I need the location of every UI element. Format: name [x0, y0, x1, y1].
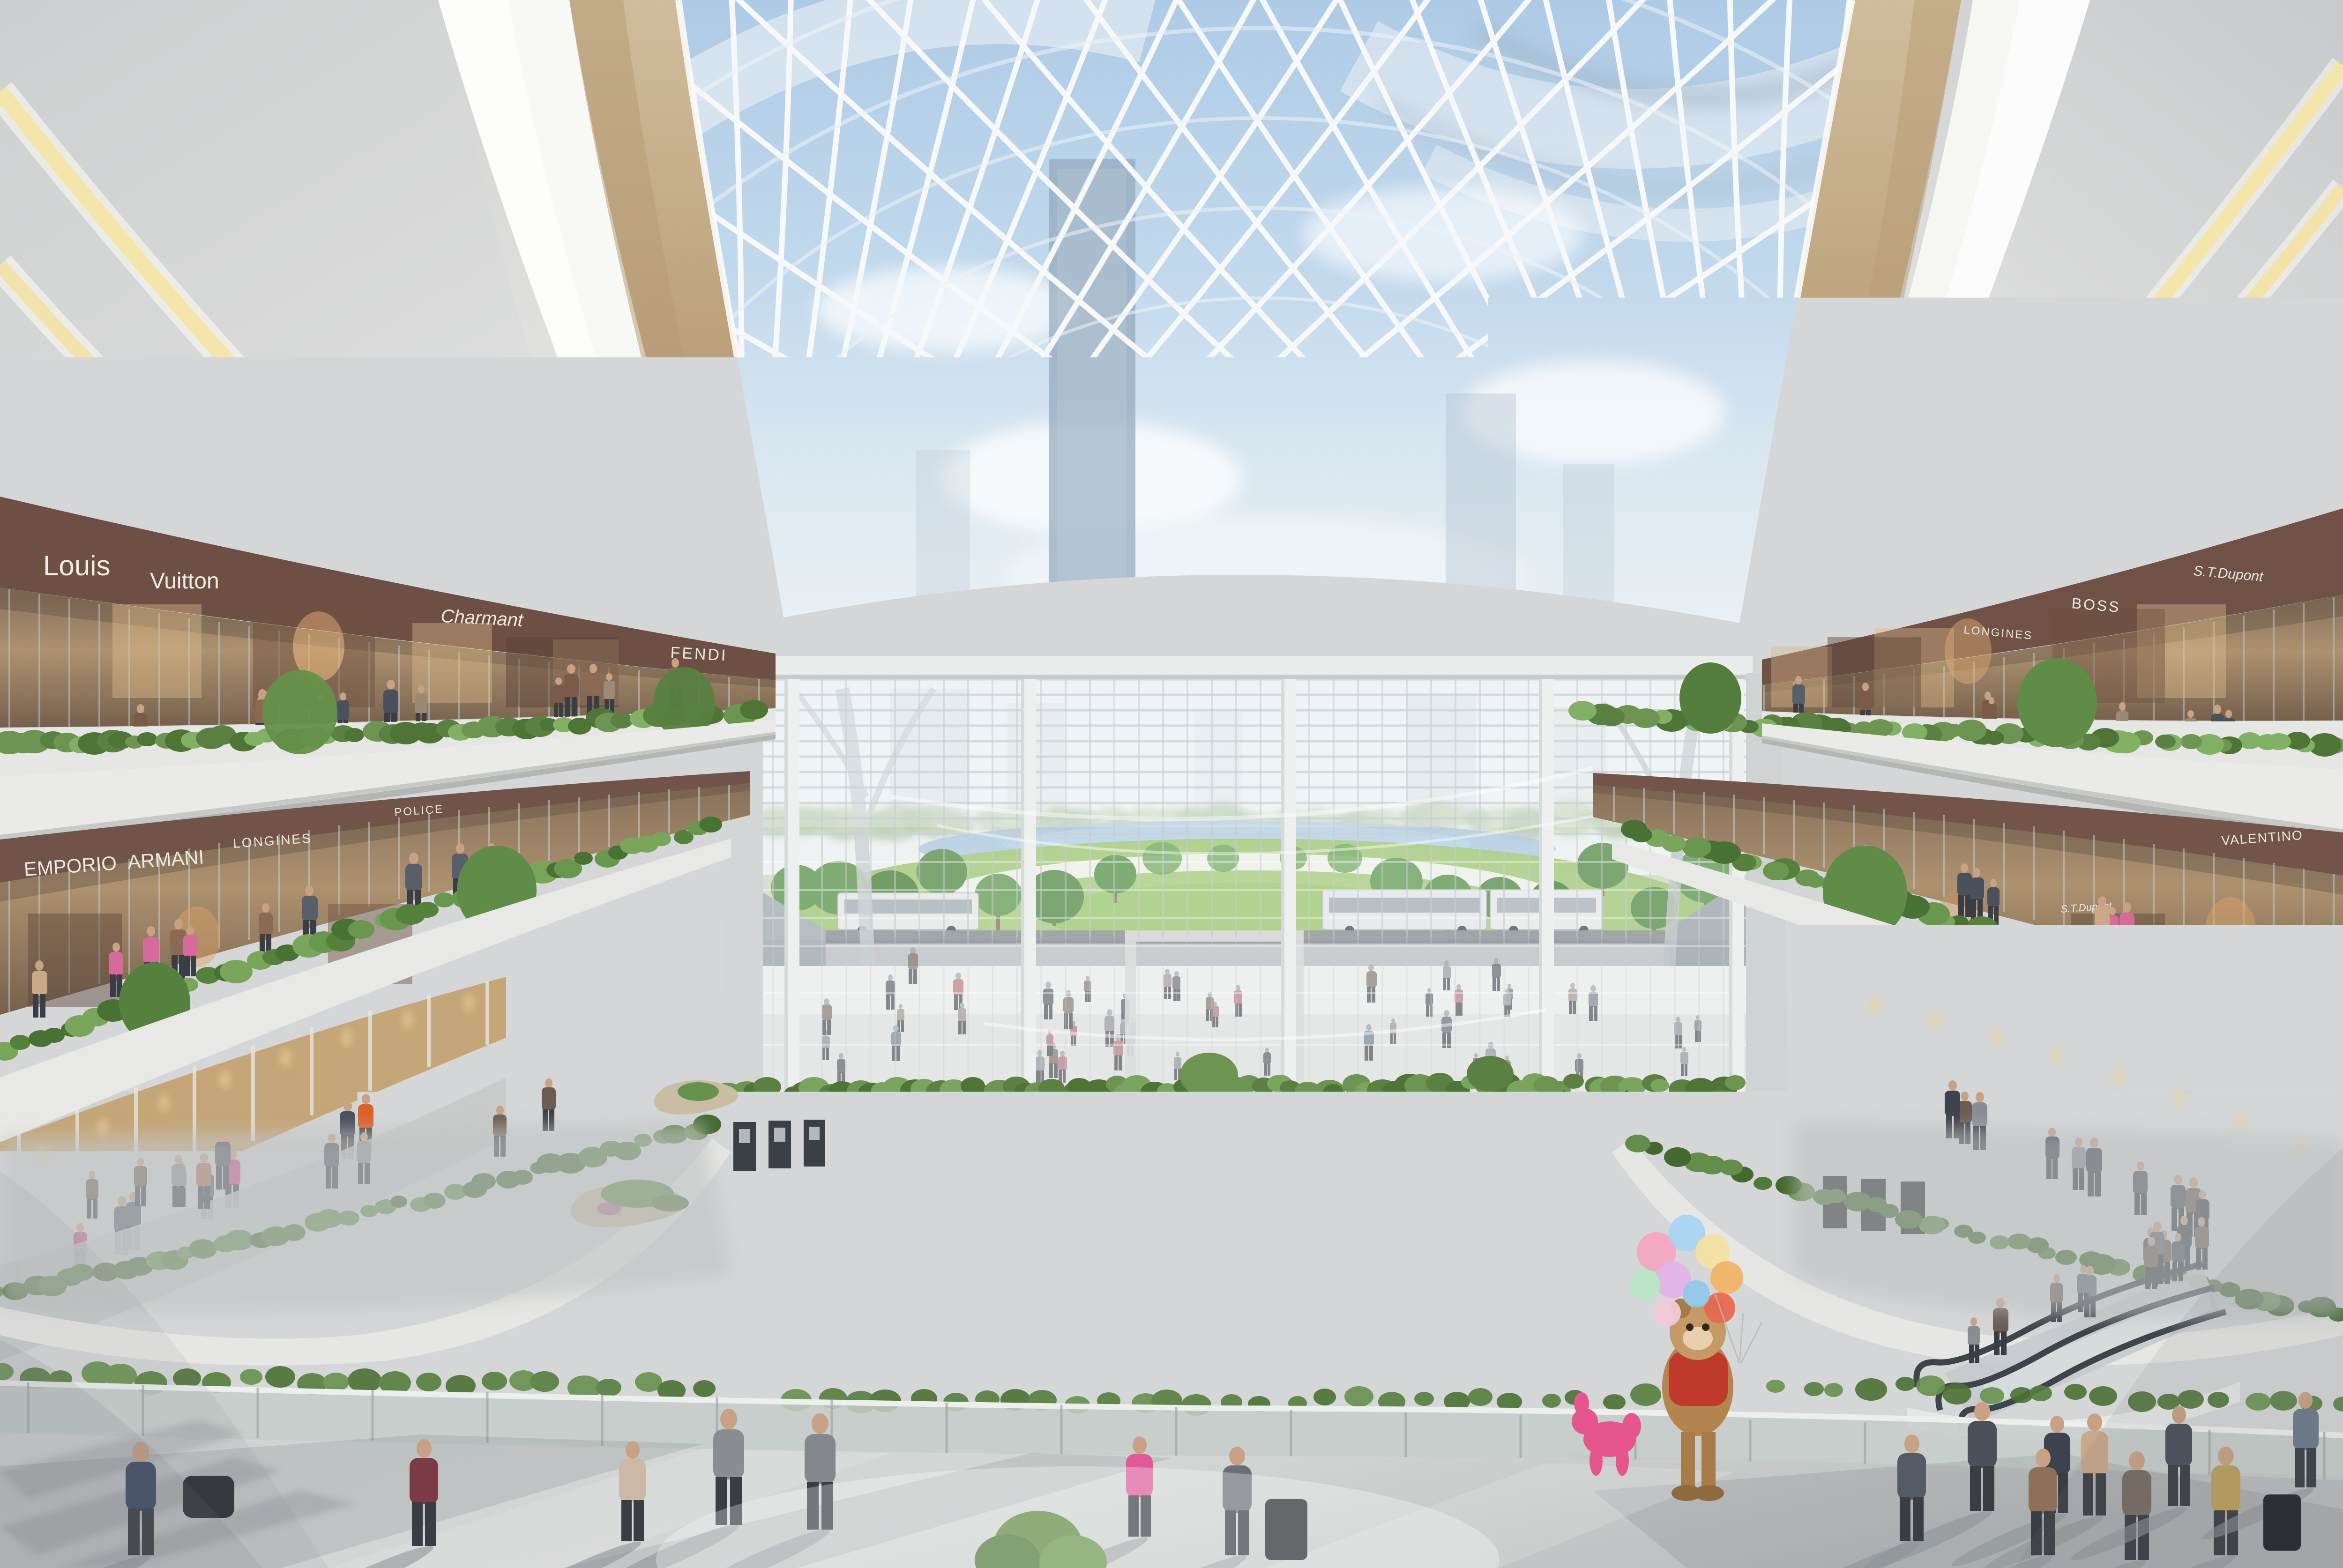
svg-text:Vuitton: Vuitton	[150, 569, 219, 594]
svg-text:FENDI: FENDI	[670, 644, 728, 664]
svg-text:Louis: Louis	[43, 550, 110, 581]
svg-text:Charmant: Charmant	[440, 606, 525, 631]
